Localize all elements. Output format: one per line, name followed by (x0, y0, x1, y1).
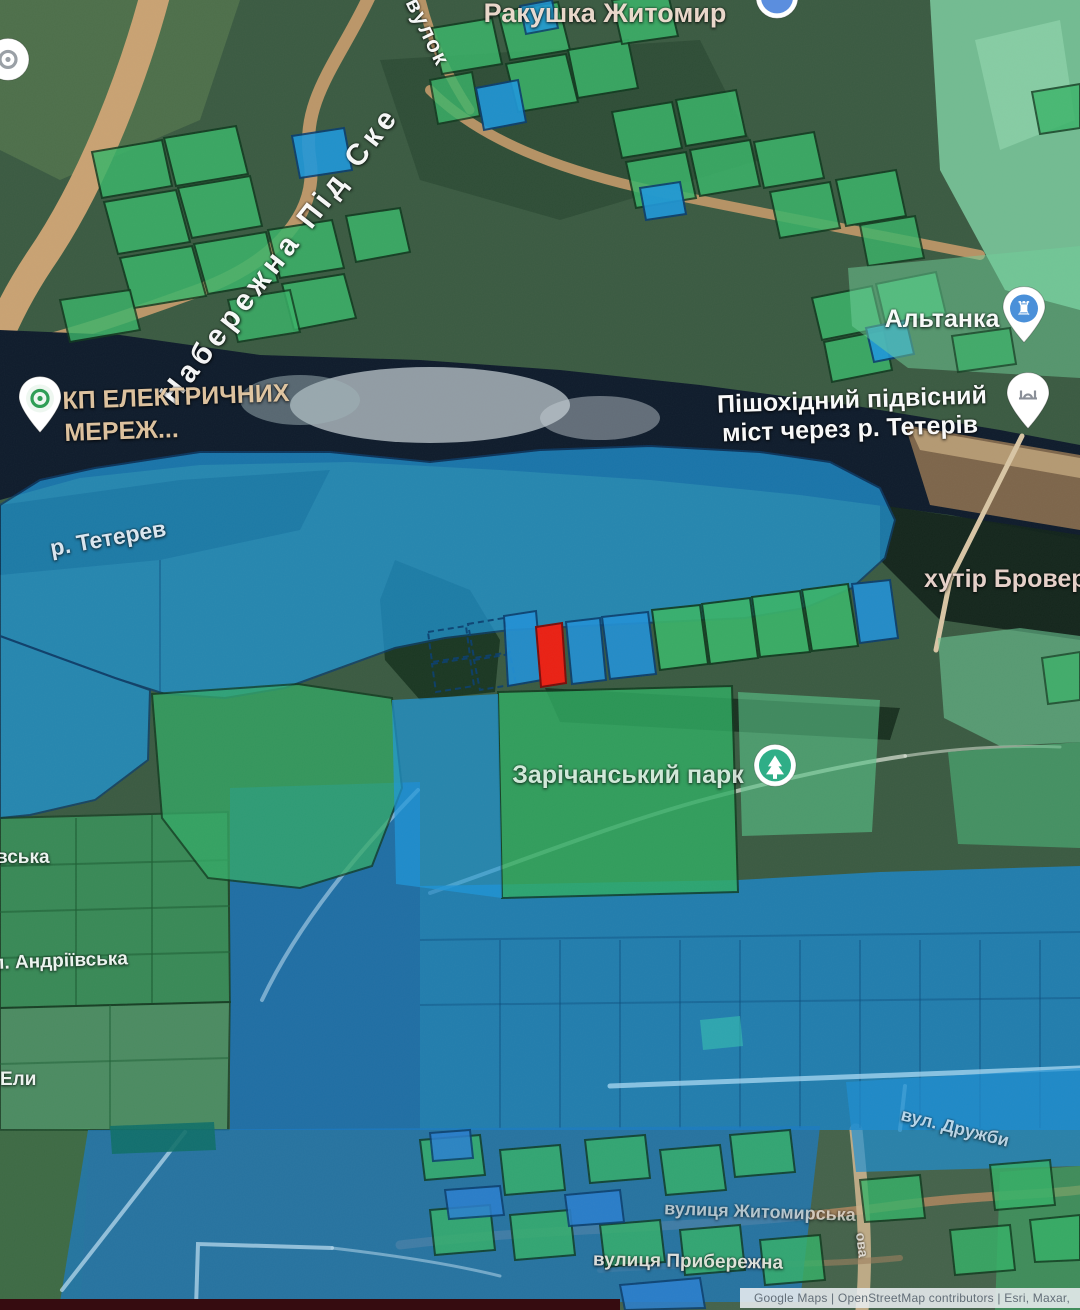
poi-circle-park[interactable] (752, 742, 798, 793)
pedestrian-bridge-pin-icon (1005, 371, 1051, 429)
map-canvas (0, 0, 1080, 1310)
svg-text:♜: ♜ (1015, 298, 1032, 320)
top-edge-circle-icon (754, 0, 800, 20)
photo-grain-texture (0, 0, 1080, 1310)
attribution-text: Google Maps | OpenStreetMap contributors… (754, 1291, 1070, 1305)
photo-edge-bar (0, 1299, 620, 1310)
attribution-bar: Google Maps | OpenStreetMap contributors… (740, 1288, 1080, 1308)
park-circle-icon (752, 742, 798, 788)
altanka-pin-icon: ♜ (1001, 285, 1047, 343)
poi-circle-left-edge[interactable] (0, 36, 31, 87)
poi-pin-bridge[interactable] (1005, 371, 1051, 434)
left-edge-circle-icon (0, 36, 31, 82)
map-viewport[interactable]: Ракушка ЖитомирНабережна Під СкевулокКП … (0, 0, 1080, 1310)
poi-circle-top-edge[interactable] (754, 0, 800, 25)
electric-networks-pin-icon (17, 375, 63, 433)
poi-pin-altanka[interactable]: ♜ (1001, 285, 1047, 348)
poi-pin-electric-networks[interactable] (17, 375, 63, 438)
